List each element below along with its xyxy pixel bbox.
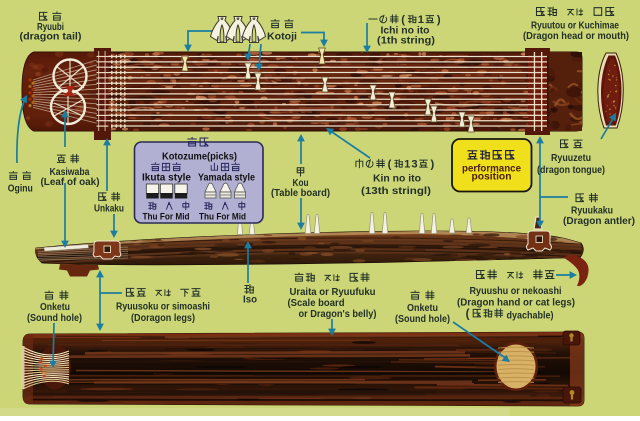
- svg-text:Ryuushu or nekoashi: Ryuushu or nekoashi: [470, 286, 562, 297]
- svg-text:dyachable): dyachable): [507, 311, 554, 322]
- svg-text:Onketu: Onketu: [40, 302, 70, 313]
- svg-text:Ikuta style: Ikuta style: [142, 173, 191, 184]
- svg-text:(: (: [401, 14, 405, 26]
- svg-text:): ): [437, 14, 441, 26]
- svg-text:(Doragon legs): (Doragon legs): [131, 313, 195, 324]
- svg-text:): ): [431, 159, 435, 171]
- svg-text:Ryuutou or Kuchimae: Ryuutou or Kuchimae: [531, 21, 619, 32]
- svg-text:(dragon tail): (dragon tail): [20, 32, 82, 43]
- svg-text:Ryuukaku: Ryuukaku: [571, 206, 613, 217]
- svg-text:Uraita or Ryuufuku: Uraita or Ryuufuku: [290, 287, 376, 298]
- svg-text:(Table board): (Table board): [271, 188, 330, 199]
- svg-text:Onketu: Onketu: [407, 303, 438, 314]
- svg-text:Thu For Mid: Thu For Mid: [199, 212, 246, 223]
- svg-text:Iso: Iso: [243, 295, 257, 306]
- svg-text:or Dragon's belly): or Dragon's belly): [299, 309, 377, 320]
- svg-text:(: (: [388, 159, 392, 171]
- svg-text:(1th string): (1th string): [377, 36, 435, 47]
- svg-text:(Dragon head or mouth): (Dragon head or mouth): [523, 31, 629, 42]
- svg-text:Kotozume(picks): Kotozume(picks): [162, 152, 237, 163]
- svg-text:(Leaf of oak): (Leaf of oak): [41, 177, 100, 188]
- svg-text:Kotoji: Kotoji: [267, 32, 297, 43]
- svg-text:Thu For Mid: Thu For Mid: [143, 212, 190, 223]
- svg-text:(Scale board: (Scale board: [288, 298, 345, 309]
- svg-text:(Dragon hand or cat legs): (Dragon hand or cat legs): [457, 298, 575, 309]
- svg-text:Ryuusoku or simoashi: Ryuusoku or simoashi: [116, 302, 210, 313]
- svg-text:(13th stringl): (13th stringl): [361, 186, 431, 197]
- svg-text:1: 1: [404, 159, 410, 171]
- svg-text:position: position: [472, 172, 512, 183]
- svg-text:(dragon tongue): (dragon tongue): [537, 165, 605, 176]
- svg-text:(Sound hole): (Sound hole): [27, 313, 82, 324]
- svg-text:Kin no ito: Kin no ito: [373, 174, 421, 185]
- svg-text:Yamada style: Yamada style: [198, 173, 255, 184]
- svg-text:Oginu: Oginu: [8, 184, 33, 195]
- svg-text:(Sound hole): (Sound hole): [395, 314, 450, 325]
- svg-text:1: 1: [418, 14, 424, 26]
- svg-text:3: 3: [411, 159, 417, 171]
- svg-text:Unkaku: Unkaku: [94, 204, 124, 215]
- svg-text:(Dragon antler): (Dragon antler): [563, 216, 635, 227]
- svg-text:(: (: [466, 308, 470, 321]
- svg-text:Ryuuzetu: Ryuuzetu: [551, 153, 591, 164]
